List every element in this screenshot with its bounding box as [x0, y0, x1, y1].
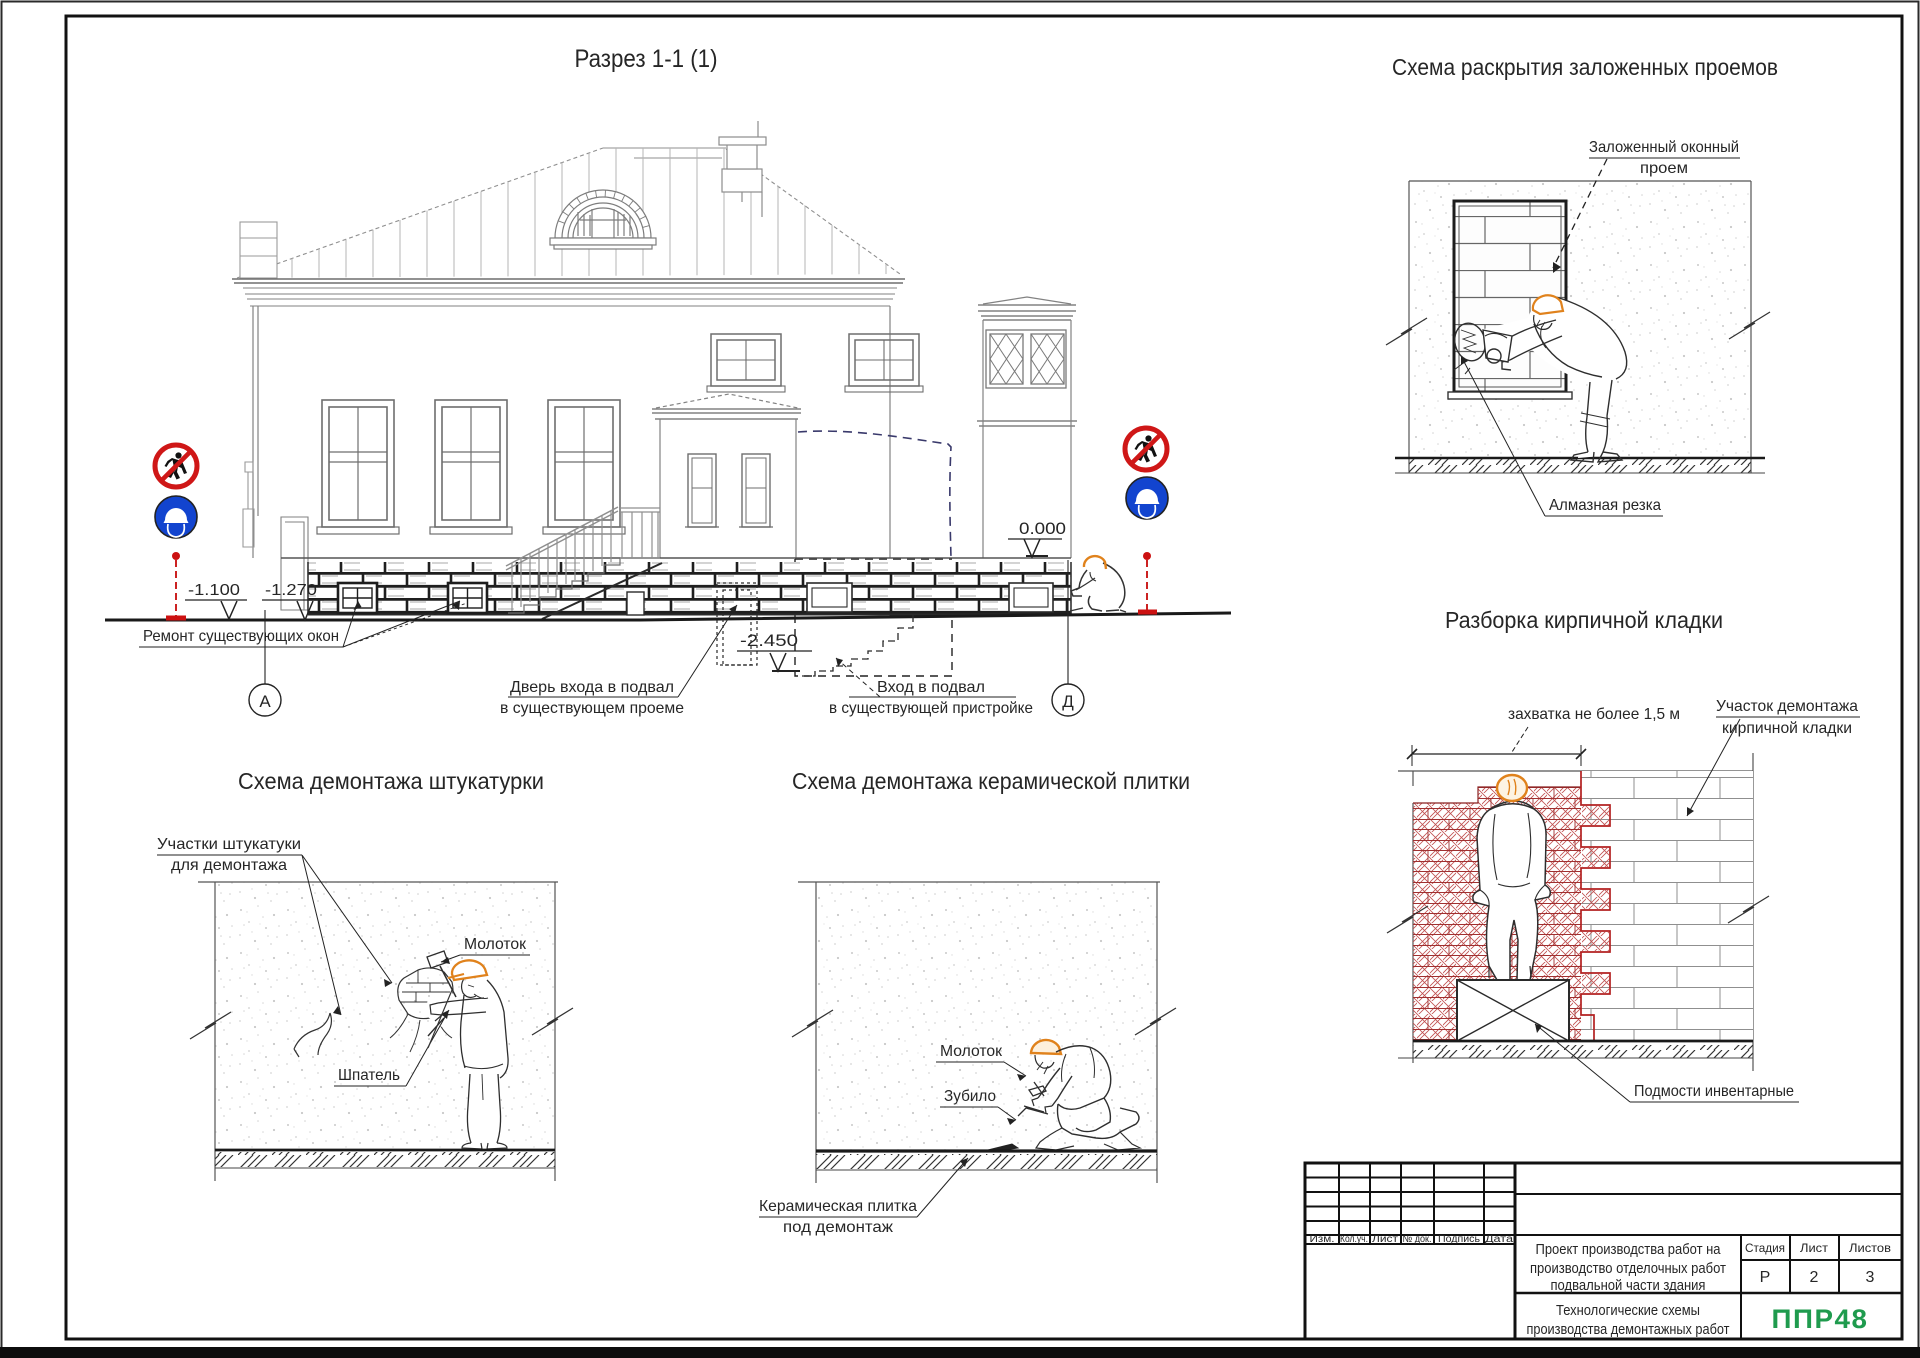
svg-text:№ док.: № док. — [1403, 1234, 1432, 1245]
svg-text:Вход в подвал: Вход в подвал — [877, 679, 985, 696]
svg-text:Разрез 1-1 (1): Разрез 1-1 (1) — [575, 45, 718, 73]
svg-text:производства демонтажных работ: производства демонтажных работ — [1527, 1321, 1730, 1338]
svg-text:-1.100: -1.100 — [188, 582, 240, 599]
svg-text:0.000: 0.000 — [1019, 519, 1066, 538]
svg-text:-1.270: -1.270 — [265, 582, 317, 599]
svg-text:для демонтажа: для демонтажа — [171, 857, 287, 874]
svg-text:в существующем проеме: в существующем проеме — [500, 700, 684, 717]
svg-text:ППР48: ППР48 — [1772, 1304, 1869, 1334]
svg-text:Керамическая плитка: Керамическая плитка — [759, 1198, 917, 1215]
svg-text:Молоток: Молоток — [940, 1043, 1003, 1060]
svg-text:кирпичной кладки: кирпичной кладки — [1722, 720, 1852, 737]
svg-text:Схема раскрытия заложенных про: Схема раскрытия заложенных проемов — [1392, 54, 1778, 80]
svg-text:Кол.уч.: Кол.уч. — [1340, 1234, 1368, 1245]
svg-text:под демонтаж: под демонтаж — [783, 1219, 893, 1236]
svg-text:Изм.: Изм. — [1310, 1234, 1335, 1245]
svg-text:производство отделочных работ: производство отделочных работ — [1530, 1260, 1726, 1277]
svg-text:Д: Д — [1062, 692, 1074, 711]
svg-text:Молоток: Молоток — [464, 936, 527, 953]
svg-text:-2.450: -2.450 — [740, 631, 798, 650]
svg-text:Подмости инвентарные: Подмости инвентарные — [1634, 1083, 1794, 1100]
svg-text:Проект производства работ на: Проект производства работ на — [1536, 1241, 1722, 1258]
svg-text:А: А — [259, 692, 271, 711]
svg-text:2: 2 — [1810, 1269, 1819, 1286]
svg-text:Лист: Лист — [1800, 1241, 1829, 1255]
svg-text:подвальной части здания: подвальной части здания — [1551, 1277, 1706, 1294]
svg-text:Стадия: Стадия — [1745, 1241, 1785, 1255]
svg-text:Подпись: Подпись — [1438, 1234, 1480, 1245]
svg-text:Схема демонтажа керамической п: Схема демонтажа керамической плитки — [792, 768, 1190, 794]
svg-text:Дверь входа в подвал: Дверь входа в подвал — [510, 679, 674, 696]
svg-text:Заложенный оконный: Заложенный оконный — [1589, 139, 1739, 156]
svg-text:Зубило: Зубило — [944, 1088, 996, 1105]
svg-text:Дата: Дата — [1485, 1234, 1514, 1245]
svg-text:Листов: Листов — [1849, 1241, 1891, 1255]
svg-text:захватка не более 1,5 м: захватка не более 1,5 м — [1508, 706, 1680, 723]
svg-text:Схема демонтажа штукатурки: Схема демонтажа штукатурки — [238, 768, 544, 794]
svg-text:Разборка кирпичной кладки: Разборка кирпичной кладки — [1445, 607, 1723, 633]
svg-text:Ремонт существующих окон: Ремонт существующих окон — [143, 628, 339, 645]
svg-text:Технологические схемы: Технологические схемы — [1556, 1302, 1700, 1319]
svg-text:Р: Р — [1760, 1269, 1771, 1286]
svg-text:Лист: Лист — [1372, 1234, 1398, 1245]
svg-text:Участки штукатуки: Участки штукатуки — [157, 836, 301, 853]
svg-text:Алмазная резка: Алмазная резка — [1549, 497, 1661, 514]
svg-text:Шпатель: Шпатель — [338, 1067, 400, 1084]
svg-text:Участок демонтажа: Участок демонтажа — [1716, 698, 1858, 715]
svg-text:проем: проем — [1640, 160, 1688, 177]
svg-text:в существующей пристройке: в существующей пристройке — [829, 700, 1033, 717]
svg-text:3: 3 — [1866, 1269, 1875, 1286]
